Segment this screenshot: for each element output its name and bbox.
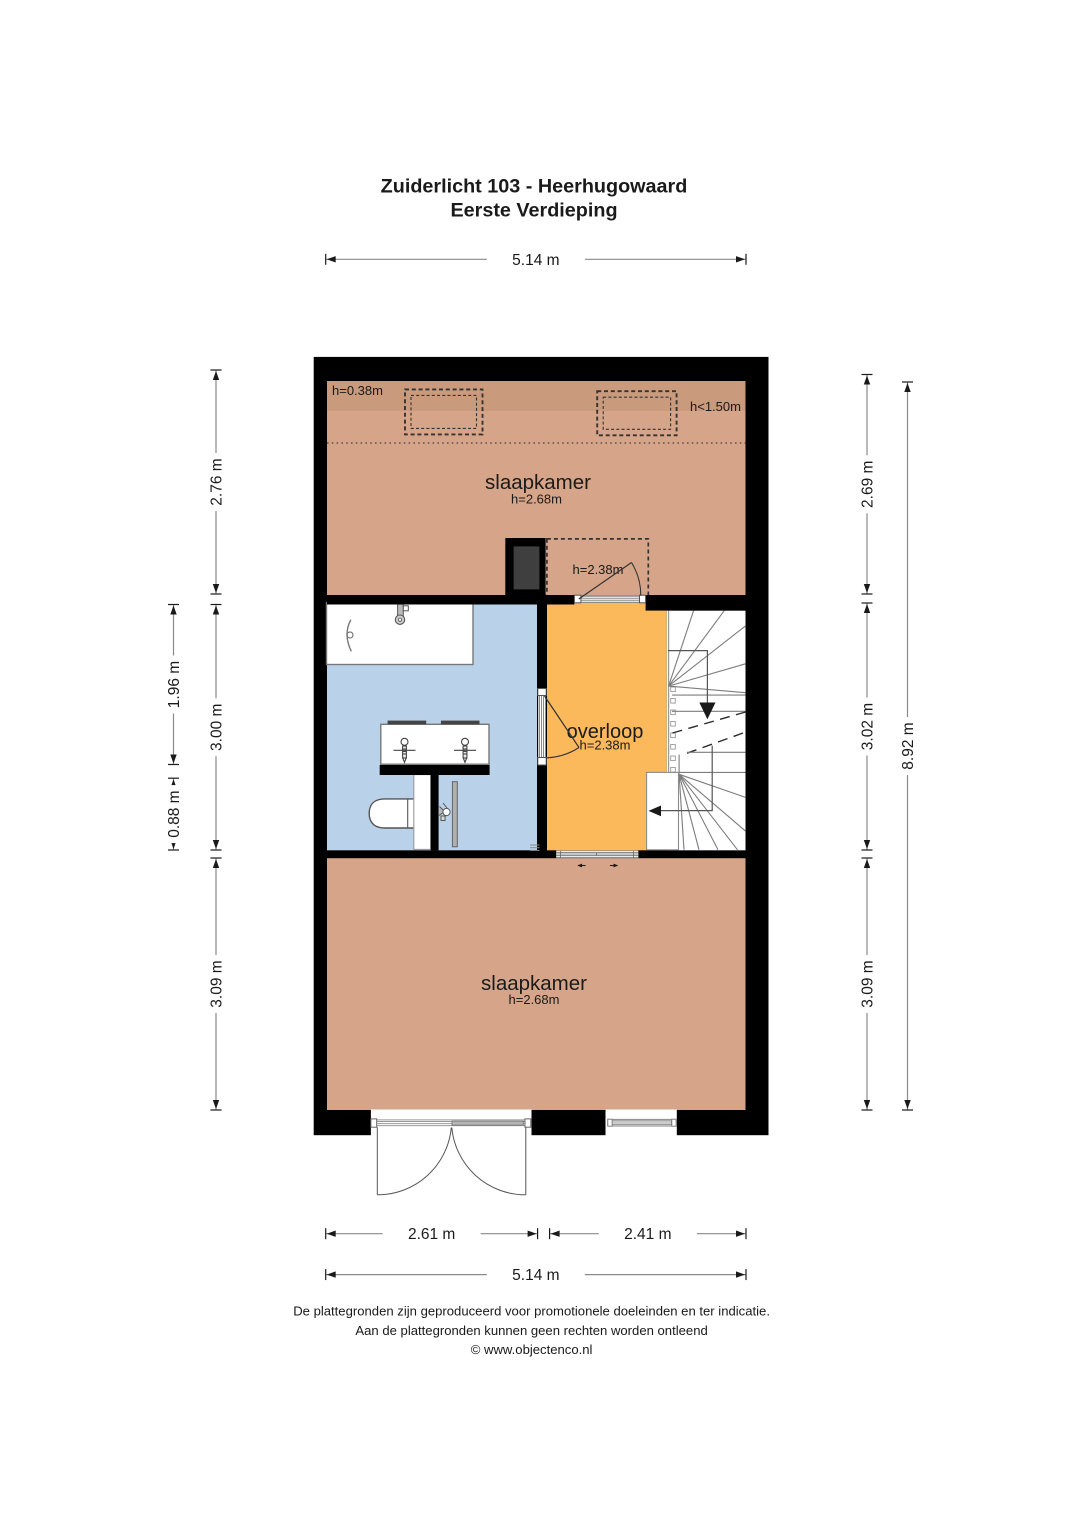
svg-text:0.88 m: 0.88 m — [166, 790, 183, 837]
svg-text:3.09 m: 3.09 m — [859, 960, 876, 1007]
svg-text:3.09 m: 3.09 m — [208, 960, 225, 1007]
svg-text:8.92 m: 8.92 m — [900, 722, 917, 769]
svg-text:2.69 m: 2.69 m — [859, 461, 876, 508]
svg-text:h=2.68m: h=2.68m — [511, 492, 562, 507]
svg-text:h=2.38m: h=2.38m — [580, 738, 631, 753]
svg-text:Zuiderlicht 103 - Heerhugowaar: Zuiderlicht 103 - Heerhugowaard — [381, 176, 688, 198]
svg-text:2.41 m: 2.41 m — [624, 1226, 671, 1243]
svg-text:2.76 m: 2.76 m — [208, 458, 225, 505]
svg-text:1.96 m: 1.96 m — [166, 661, 183, 708]
svg-text:slaapkamer: slaapkamer — [485, 471, 591, 494]
svg-text:h=0.38m: h=0.38m — [332, 383, 383, 398]
svg-text:5.14 m: 5.14 m — [512, 252, 559, 269]
svg-text:Eerste Verdieping: Eerste Verdieping — [450, 200, 617, 222]
svg-text:3.02 m: 3.02 m — [859, 703, 876, 750]
svg-text:Aan de plattegronden kunnen ge: Aan de plattegronden kunnen geen rechten… — [355, 1323, 707, 1338]
svg-text:3.00 m: 3.00 m — [208, 704, 225, 751]
svg-text:h=2.38m: h=2.38m — [573, 562, 624, 577]
svg-text:© www.objectenco.nl: © www.objectenco.nl — [471, 1342, 593, 1357]
svg-text:h=2.68m: h=2.68m — [509, 992, 560, 1007]
svg-text:5.14 m: 5.14 m — [512, 1267, 559, 1284]
svg-text:De plattegronden zijn geproduc: De plattegronden zijn geproduceerd voor … — [293, 1304, 770, 1319]
svg-text:2.61 m: 2.61 m — [408, 1226, 455, 1243]
svg-text:h<1.50m: h<1.50m — [690, 399, 741, 414]
